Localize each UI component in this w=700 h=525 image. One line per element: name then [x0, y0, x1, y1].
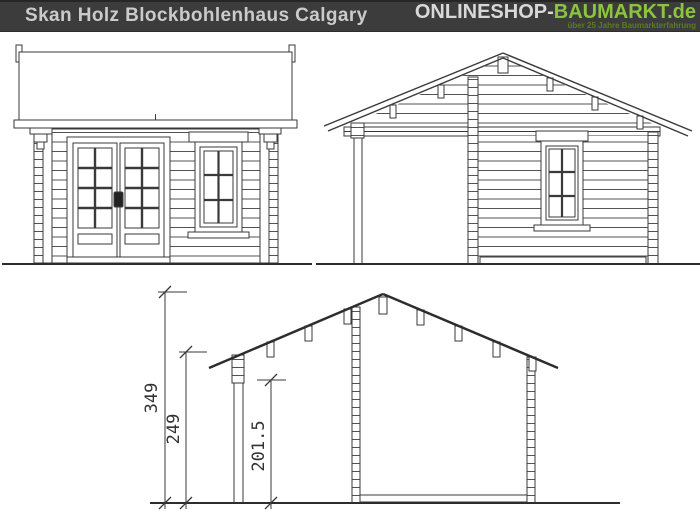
section-floor: [360, 495, 527, 502]
section-rear-wall: [527, 357, 535, 503]
dimension-label-wall-height: 201.5: [249, 420, 269, 471]
double-door: [67, 137, 170, 263]
section-view: 349 249 201.5: [142, 286, 620, 509]
cabin-rear-corner: [648, 132, 658, 264]
section-purlin-ends: [267, 297, 536, 371]
foundation-beam: [480, 257, 646, 264]
front-elevation-view: [2, 45, 312, 264]
cabin-front-corner: [468, 77, 478, 264]
dimension-label-eave-height: 249: [164, 414, 184, 445]
dimension-eave-height: 249: [164, 346, 207, 509]
dimension-label-ridge-height: 349: [142, 383, 162, 414]
front-window: [188, 132, 249, 238]
side-window: [534, 131, 590, 231]
front-roof: [14, 52, 297, 128]
porch-post: [351, 123, 364, 264]
section-front-wall: [352, 307, 360, 503]
eave-beam: [344, 127, 660, 136]
door-handle: [114, 192, 123, 207]
side-elevation-view: [316, 53, 700, 264]
dimension-wall-height: 201.5: [249, 374, 286, 509]
technical-drawing: 349 249 201.5: [0, 0, 700, 525]
dimension-ridge-height: 349: [142, 286, 187, 509]
front-fascia: [14, 120, 297, 128]
section-porch-post: [232, 355, 244, 503]
